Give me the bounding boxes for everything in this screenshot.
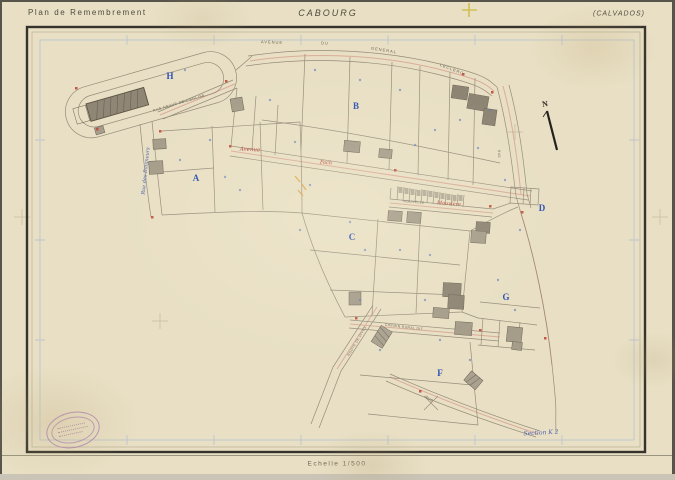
church-building [73,87,149,125]
section-label-F: F [437,368,443,378]
commune-title: CABOURG [298,8,358,18]
section-label-A: A [193,173,200,183]
street-foch-red: Foch [320,160,333,167]
section-label-H: H [166,71,173,81]
plan-title: Plan de Remembrement [28,8,147,17]
section-label-G: G [502,292,509,302]
scale-label: Echelle 1/500 [308,461,367,468]
north-label: N [542,99,549,109]
department-title: (CALVADOS) [593,11,645,18]
map-drawing [0,0,675,480]
colorist-marks-orange [295,176,306,196]
north-arrow [543,111,557,150]
street-avenue-word: AVENUE [261,39,283,45]
stamp-inner-ring [49,413,97,448]
street-rue-right: RUE [497,150,501,158]
section-label-B: B [353,101,359,111]
registration-marks [14,124,668,329]
buildings [73,85,523,390]
section-label-D: D [539,203,546,213]
yellow-cross-mark [462,3,477,17]
street-avenue-red: Avenue [240,146,261,153]
map-sheet: Plan de Remembrement CABOURG (CALVADOS) … [0,0,675,480]
section-label-C: C [349,232,356,242]
street-du-word: DU [321,40,329,46]
map-frame [27,27,645,452]
